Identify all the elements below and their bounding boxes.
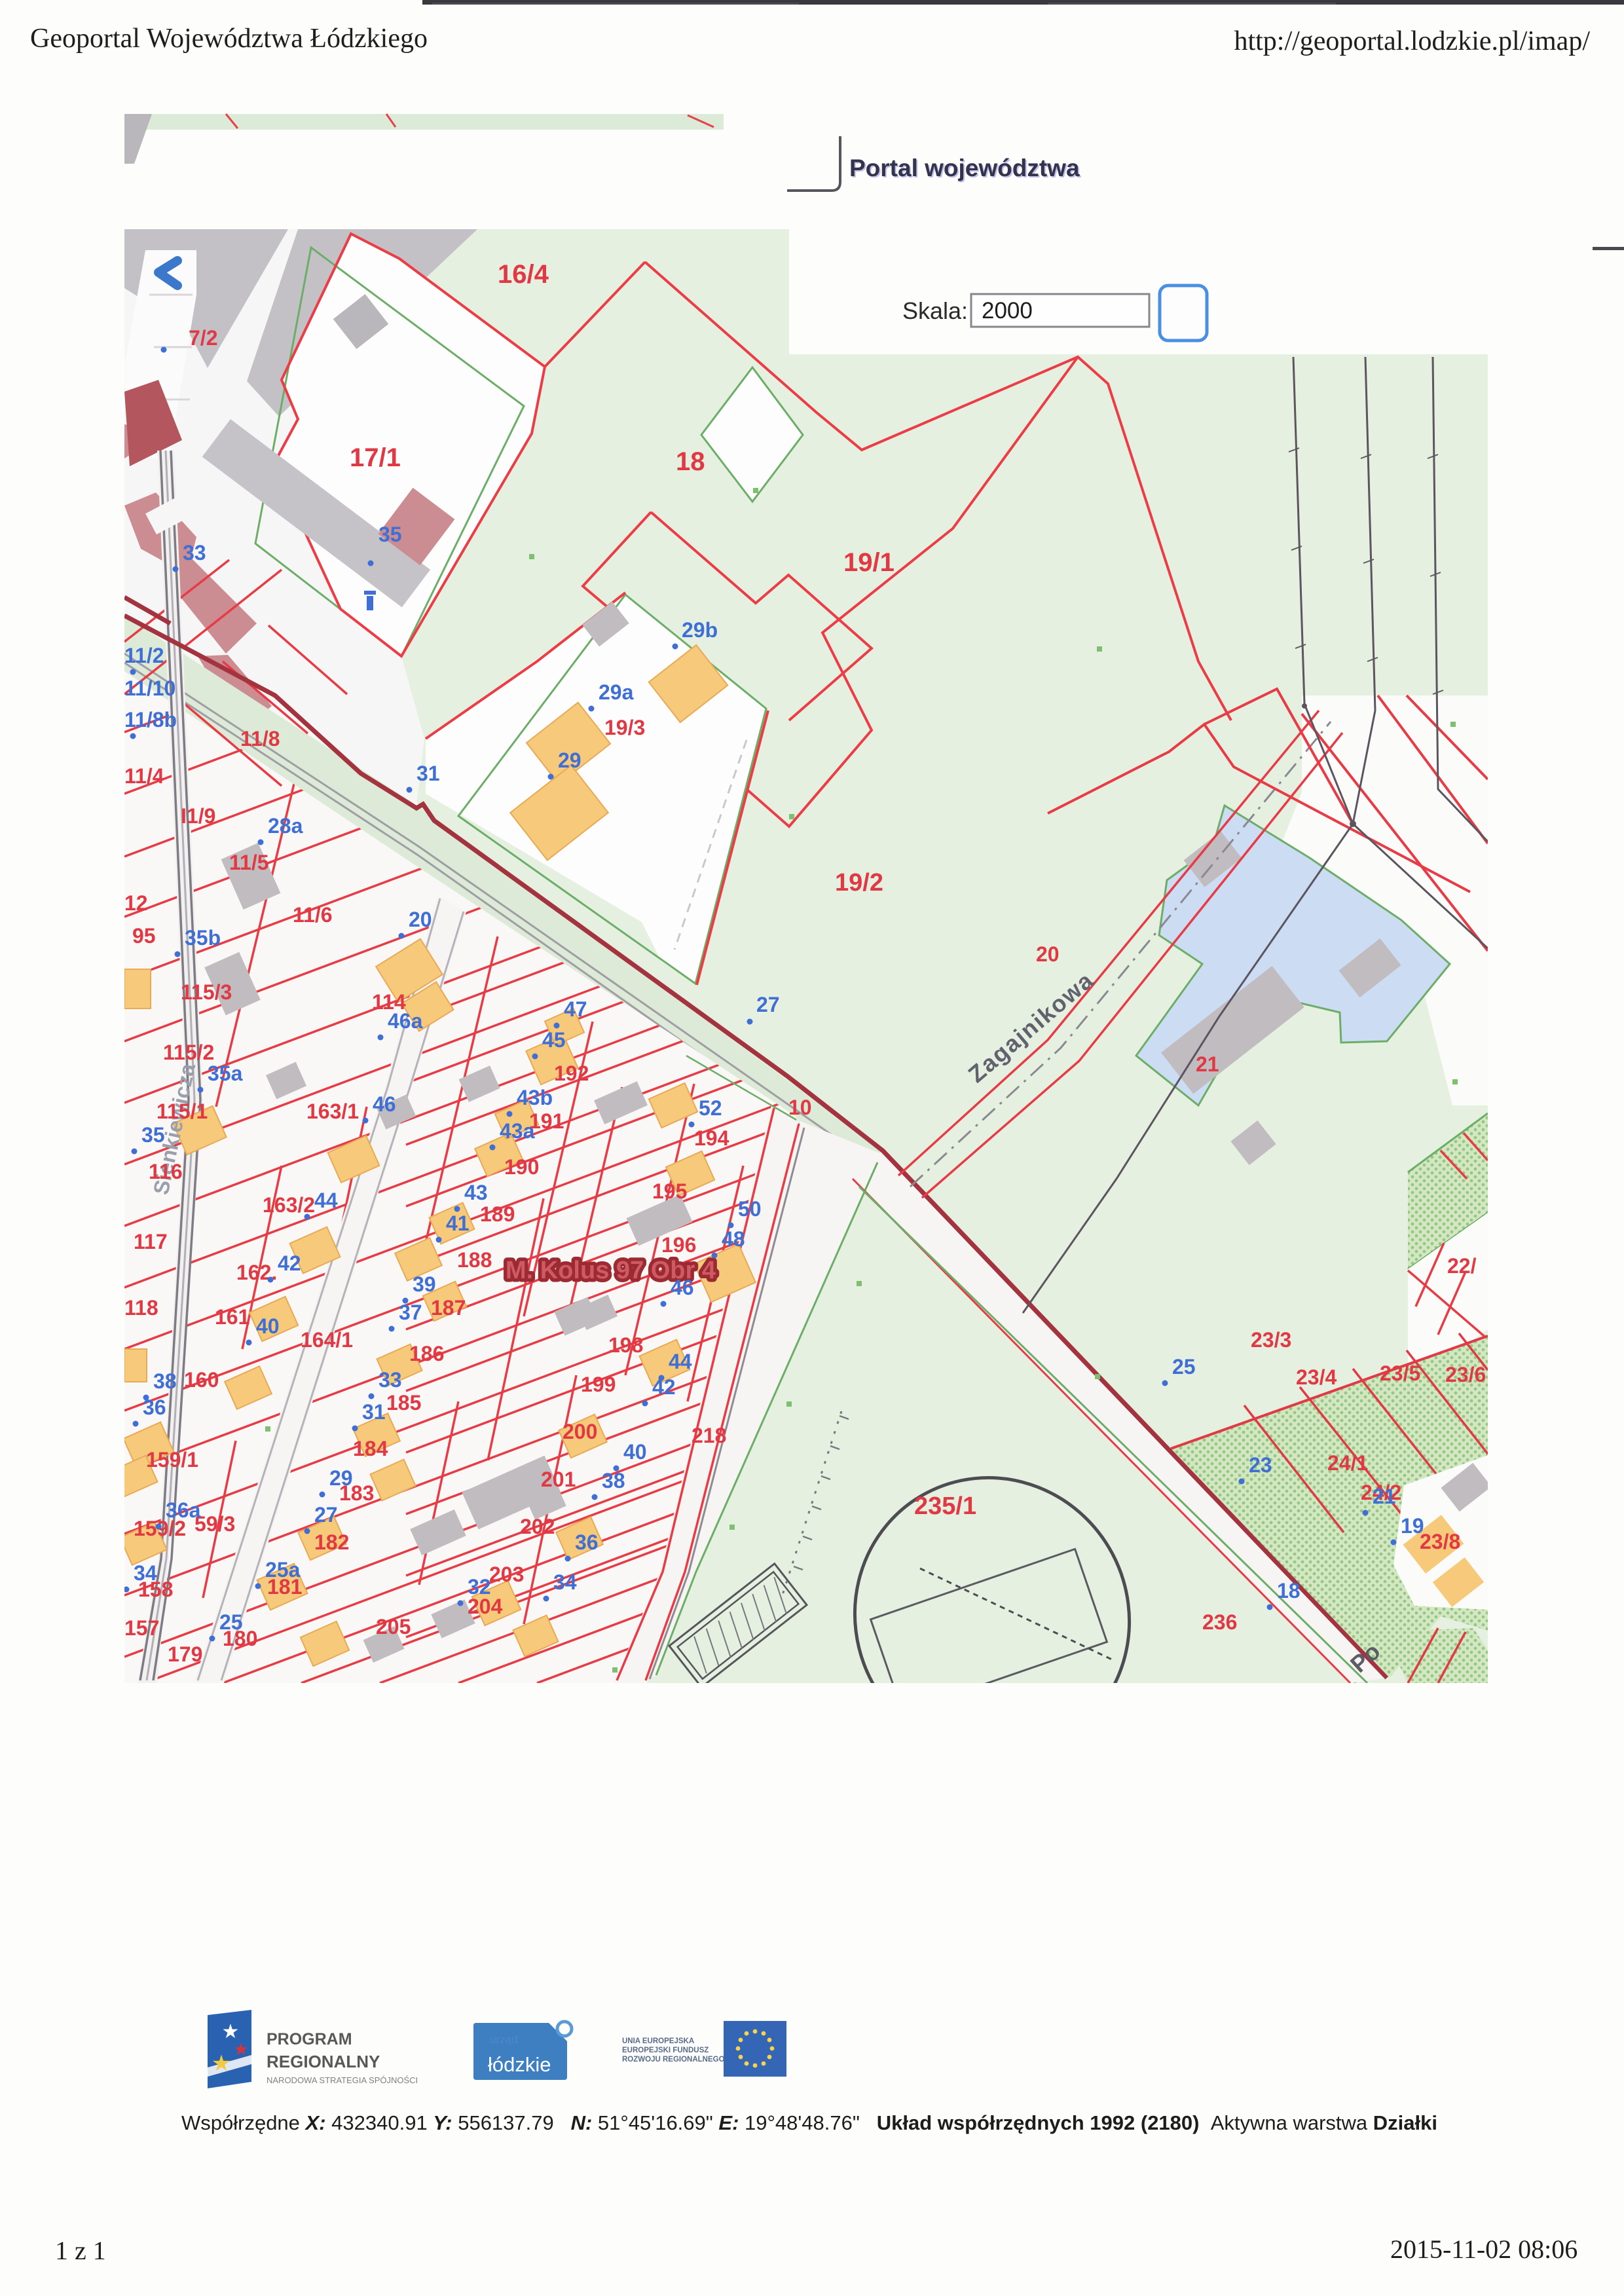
svg-text:189: 189 (480, 1202, 515, 1226)
svg-text:łódzkie: łódzkie (488, 2053, 551, 2076)
svg-text:11/2: 11/2 (124, 644, 164, 667)
svg-text:29a: 29a (599, 680, 634, 704)
svg-text:40: 40 (256, 1314, 280, 1338)
svg-text:35a: 35a (208, 1062, 243, 1085)
svg-text:50: 50 (738, 1197, 762, 1221)
svg-text:117: 117 (134, 1230, 168, 1253)
svg-text:38: 38 (153, 1369, 177, 1393)
svg-text:235/1: 235/1 (914, 1492, 976, 1520)
svg-text:19/1: 19/1 (843, 548, 895, 577)
svg-text:200: 200 (563, 1420, 597, 1443)
svg-text:19/2: 19/2 (835, 869, 883, 897)
svg-text:35: 35 (141, 1123, 165, 1147)
svg-text:41: 41 (446, 1212, 470, 1235)
svg-text:19/3: 19/3 (604, 716, 645, 739)
svg-text:EUROPEJSKI FUNDUSZ: EUROPEJSKI FUNDUSZ (622, 2046, 709, 2054)
svg-text:47: 47 (564, 997, 587, 1021)
svg-text:118: 118 (124, 1296, 158, 1320)
svg-text:115/2: 115/2 (163, 1041, 214, 1064)
svg-text:36a: 36a (166, 1498, 201, 1522)
svg-text:161: 161 (215, 1305, 249, 1329)
svg-text:35: 35 (378, 523, 402, 546)
svg-text:23: 23 (1249, 1453, 1272, 1477)
svg-text:11/4: 11/4 (124, 764, 164, 788)
svg-text:185: 185 (386, 1391, 421, 1415)
svg-text:2015-11-02 08:06: 2015-11-02 08:06 (1390, 2234, 1578, 2264)
svg-text:31: 31 (416, 762, 440, 785)
svg-text:27: 27 (314, 1503, 338, 1527)
svg-text:http://geoportal.lodzkie.pl/im: http://geoportal.lodzkie.pl/imap/ (1234, 26, 1590, 56)
svg-text:20: 20 (409, 908, 432, 931)
svg-text:37: 37 (399, 1301, 422, 1324)
svg-text:PROGRAM: PROGRAM (267, 2030, 352, 2048)
svg-text:203: 203 (489, 1563, 524, 1586)
svg-text:★: ★ (233, 2039, 248, 2059)
svg-text:115/1: 115/1 (157, 1100, 208, 1123)
svg-text:23/6: 23/6 (1445, 1363, 1486, 1386)
svg-text:202: 202 (520, 1515, 555, 1538)
svg-text:★: ★ (212, 2051, 231, 2076)
svg-text:46: 46 (373, 1092, 396, 1116)
svg-text:198: 198 (608, 1333, 643, 1357)
svg-text:11/5: 11/5 (229, 851, 269, 874)
svg-text:48: 48 (722, 1227, 745, 1251)
svg-text:116: 116 (149, 1160, 183, 1183)
svg-text:UNIA EUROPEJSKA: UNIA EUROPEJSKA (622, 2037, 694, 2045)
svg-text:236: 236 (1202, 1610, 1237, 1634)
svg-text:163/2: 163/2 (263, 1193, 315, 1217)
svg-text:18: 18 (1277, 1579, 1301, 1602)
svg-text:31: 31 (362, 1400, 386, 1424)
svg-text:REGIONALNY: REGIONALNY (267, 2052, 380, 2071)
svg-text:21: 21 (1373, 1485, 1396, 1508)
svg-text:34: 34 (553, 1570, 577, 1594)
svg-text:42: 42 (278, 1251, 301, 1275)
svg-text:25: 25 (1172, 1355, 1196, 1379)
svg-text:20: 20 (1036, 942, 1060, 966)
svg-text:33: 33 (378, 1368, 402, 1392)
svg-text:28a: 28a (268, 814, 303, 838)
svg-text:160: 160 (184, 1368, 219, 1392)
svg-text:Skala:: Skala: (902, 297, 968, 324)
svg-text:43b: 43b (517, 1086, 553, 1109)
svg-text:194: 194 (694, 1126, 729, 1150)
svg-text:34: 34 (134, 1561, 157, 1585)
svg-text:44: 44 (314, 1189, 338, 1212)
svg-text:2000: 2000 (982, 298, 1033, 324)
svg-text:22/: 22/ (1447, 1254, 1477, 1278)
svg-text:159/1: 159/1 (146, 1448, 198, 1472)
svg-text:ROZWOJU REGIONALNEGO: ROZWOJU REGIONALNEGO (622, 2056, 725, 2064)
svg-text:182: 182 (314, 1530, 349, 1554)
svg-text:115/3: 115/3 (181, 980, 232, 1004)
svg-text:Geoportal Województwa Łódzkieg: Geoportal Województwa Łódzkiego (30, 24, 428, 54)
svg-text:179: 179 (168, 1642, 202, 1666)
svg-text:23/3: 23/3 (1251, 1328, 1291, 1352)
svg-text:188: 188 (457, 1248, 492, 1272)
svg-text:23/4: 23/4 (1296, 1365, 1337, 1389)
svg-text:184: 184 (353, 1437, 388, 1460)
svg-text:33: 33 (183, 541, 206, 565)
svg-text:190: 190 (504, 1155, 539, 1179)
svg-text:186: 186 (409, 1342, 444, 1365)
svg-text:11/6: 11/6 (293, 903, 333, 927)
svg-text:43: 43 (464, 1181, 488, 1204)
svg-text:40: 40 (623, 1440, 647, 1464)
svg-text:I1/9: I1/9 (181, 804, 215, 828)
svg-text:29: 29 (558, 749, 581, 772)
svg-text:44: 44 (669, 1350, 692, 1373)
svg-text:39: 39 (413, 1272, 436, 1296)
svg-text:52: 52 (699, 1096, 722, 1120)
svg-text:12: 12 (124, 891, 148, 915)
svg-text:35b: 35b (185, 926, 221, 950)
svg-text:29b: 29b (682, 618, 718, 642)
svg-text:201: 201 (541, 1468, 576, 1491)
svg-text:NARODOWA STRATEGIA SPÓJNOŚCI: NARODOWA STRATEGIA SPÓJNOŚCI (267, 2075, 418, 2085)
svg-text:25a: 25a (265, 1558, 301, 1582)
svg-text:45: 45 (542, 1028, 566, 1052)
svg-text:163/1: 163/1 (306, 1100, 359, 1123)
svg-text:19: 19 (1401, 1514, 1424, 1538)
svg-text:218: 218 (692, 1424, 726, 1447)
svg-text:36: 36 (575, 1530, 599, 1554)
svg-text:11/8b: 11/8b (124, 708, 177, 731)
svg-text:16/4: 16/4 (498, 260, 549, 289)
svg-text:196: 196 (661, 1233, 696, 1257)
svg-text:23/8: 23/8 (1420, 1530, 1460, 1553)
svg-text:24/1: 24/1 (1327, 1451, 1368, 1475)
svg-text:10: 10 (788, 1096, 812, 1119)
svg-text:192: 192 (554, 1062, 589, 1085)
svg-text:Współrzędne X: 432340.91 Y: 55: Współrzędne X: 432340.91 Y: 556137.79 N:… (181, 2111, 1437, 2134)
svg-text:164/1: 164/1 (301, 1328, 353, 1352)
svg-text:157: 157 (124, 1616, 159, 1640)
svg-text:1 z 1: 1 z 1 (55, 2236, 106, 2265)
svg-text:21: 21 (1196, 1052, 1219, 1076)
svg-text:38: 38 (602, 1469, 625, 1492)
svg-text:43a: 43a (500, 1119, 535, 1143)
svg-text:11/8: 11/8 (240, 727, 280, 750)
svg-text:23/5: 23/5 (1380, 1361, 1420, 1385)
svg-text:95: 95 (132, 924, 156, 948)
svg-text:7/2: 7/2 (189, 326, 217, 350)
svg-text:29: 29 (329, 1466, 353, 1490)
svg-text:11/10: 11/10 (124, 676, 175, 700)
svg-text:urząd: urząd (490, 2033, 518, 2046)
svg-text:25: 25 (219, 1610, 243, 1634)
svg-text:199: 199 (581, 1373, 616, 1396)
svg-text:46a: 46a (388, 1009, 423, 1033)
svg-text:187: 187 (431, 1296, 466, 1320)
svg-text:46: 46 (671, 1276, 694, 1299)
svg-text:32: 32 (468, 1575, 491, 1599)
svg-text:27: 27 (756, 993, 780, 1016)
svg-text:18: 18 (676, 447, 705, 476)
svg-text:17/1: 17/1 (350, 443, 401, 472)
svg-text:195: 195 (652, 1179, 687, 1203)
svg-text:Portal województwa: Portal województwa (849, 155, 1080, 181)
svg-text:205: 205 (376, 1615, 411, 1639)
